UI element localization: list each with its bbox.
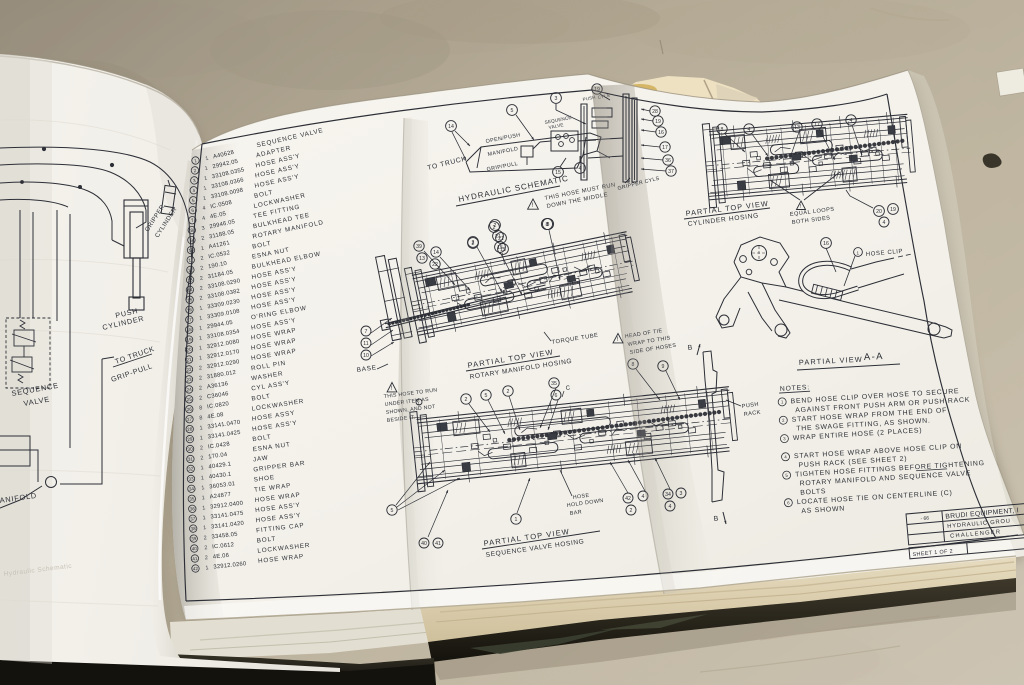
svg-text:8: 8 [721, 127, 724, 133]
svg-text:5: 5 [511, 108, 514, 114]
svg-text:4: 4 [642, 494, 645, 500]
svg-text:19: 19 [890, 207, 896, 213]
svg-text:!: ! [532, 202, 534, 209]
svg-text:5: 5 [485, 393, 488, 399]
svg-text:10: 10 [363, 353, 369, 359]
svg-text:2: 2 [494, 223, 497, 229]
svg-text:1: 1 [515, 517, 518, 523]
svg-text:41: 41 [192, 556, 198, 562]
svg-text:42: 42 [625, 496, 631, 502]
svg-text:15: 15 [497, 245, 503, 251]
svg-text:4: 4 [748, 127, 751, 133]
svg-text:2: 2 [465, 397, 468, 403]
svg-text:A-A: A-A [864, 351, 885, 363]
svg-text:8: 8 [546, 222, 549, 228]
svg-text:14: 14 [448, 124, 454, 130]
svg-text:2: 2 [507, 389, 510, 395]
svg-text:20: 20 [876, 209, 882, 215]
svg-text:11: 11 [363, 341, 368, 347]
svg-text:17: 17 [814, 122, 820, 128]
svg-text:13: 13 [419, 256, 425, 262]
svg-text:1: 1 [857, 251, 860, 256]
svg-text:- 66: - 66 [920, 515, 929, 522]
svg-text:19: 19 [655, 119, 661, 125]
svg-text:35: 35 [551, 381, 557, 387]
svg-text:5: 5 [391, 508, 394, 514]
svg-text:40: 40 [421, 541, 427, 547]
svg-text:2: 2 [630, 508, 633, 514]
svg-text:39: 39 [416, 244, 422, 250]
svg-text:17: 17 [662, 145, 668, 151]
svg-text:21: 21 [495, 234, 501, 240]
svg-text:16: 16 [823, 241, 829, 247]
svg-text:42: 42 [193, 566, 199, 572]
svg-text:28: 28 [652, 109, 658, 115]
svg-text:1: 1 [205, 565, 209, 571]
svg-text:41: 41 [435, 541, 441, 547]
svg-text:4: 4 [883, 220, 886, 226]
svg-text:39: 39 [191, 536, 197, 542]
svg-text:3: 3 [680, 491, 683, 497]
svg-text:6: 6 [555, 393, 558, 399]
svg-text:36: 36 [665, 158, 671, 164]
svg-text:40: 40 [192, 546, 198, 552]
svg-text:13: 13 [794, 125, 800, 131]
svg-text:9: 9 [662, 364, 665, 370]
svg-text:34: 34 [665, 492, 671, 498]
svg-text:4: 4 [669, 504, 672, 510]
svg-text:2: 2 [472, 240, 475, 246]
svg-text:7: 7 [365, 329, 368, 335]
svg-text:3: 3 [555, 96, 558, 102]
svg-text:4: 4 [850, 118, 853, 124]
svg-text:37: 37 [668, 169, 674, 175]
svg-text:16: 16 [658, 130, 664, 136]
svg-text:14: 14 [433, 250, 439, 256]
